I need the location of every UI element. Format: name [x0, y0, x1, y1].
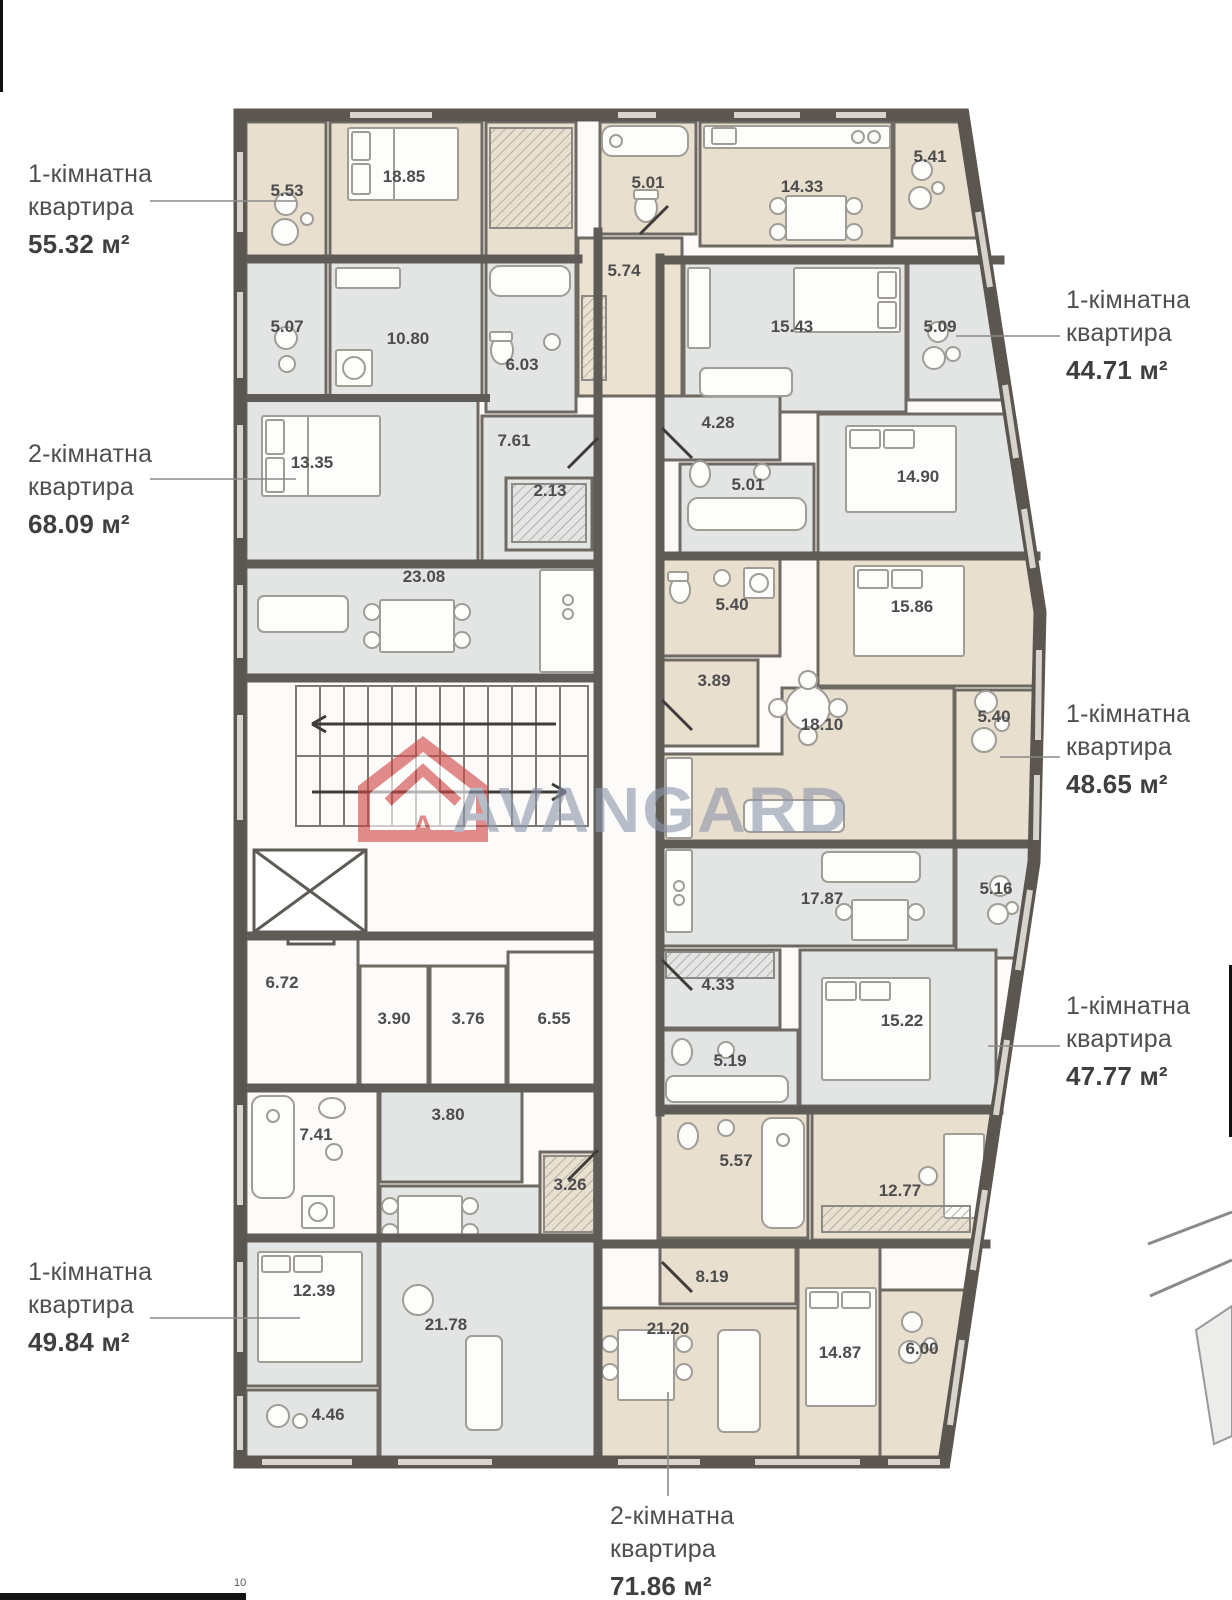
apartment-label-47: 1-кімнатна квартира 47.77 м²	[1066, 990, 1232, 1093]
elevator-shaft	[254, 850, 366, 944]
adjacent-structure	[1148, 1212, 1232, 1444]
apartment-area: 68.09 м²	[28, 507, 152, 541]
room-area-label: 6.72	[265, 973, 298, 992]
apartment-area: 71.86 м²	[610, 1569, 734, 1600]
room-area-label: 3.26	[553, 1175, 586, 1194]
apartment-label-44: 1-кімнатна квартира 44.71 м²	[1066, 284, 1232, 387]
room-area-label: 5.01	[731, 475, 764, 494]
room-area-label: 5.57	[719, 1151, 752, 1170]
apartment-type2: квартира	[1066, 731, 1232, 764]
room-area-label: 17.87	[801, 889, 844, 908]
apartment-type: 1-кімнатна	[28, 158, 152, 191]
apartment-area: 44.71 м²	[1066, 353, 1232, 387]
room-area-label: 7.61	[497, 431, 530, 450]
apartment-label-48: 1-кімнатна квартира 48.65 м²	[1066, 698, 1232, 801]
room-area-label: 4.33	[701, 975, 734, 994]
room-area-label: 5.74	[607, 261, 641, 280]
room-area-label: 18.10	[801, 715, 844, 734]
apartment-type: 2-кімнатна	[610, 1500, 734, 1533]
apartment-type2: квартира	[28, 191, 152, 224]
room-area-label: 7.41	[299, 1125, 332, 1144]
room-a6_hall	[380, 1090, 522, 1182]
apartment-label-49: 1-кімнатна квартира 49.84 м²	[28, 1256, 152, 1359]
brand-logo-letter: A	[412, 810, 434, 843]
room-area-label: 5.19	[713, 1051, 746, 1070]
page-number: 10	[234, 1577, 246, 1589]
apartment-type2: квартира	[1066, 317, 1232, 350]
room-area-label: 5.53	[270, 181, 303, 200]
room-area-label: 6.55	[537, 1009, 570, 1028]
brand-watermark-text: AVANGARD	[452, 774, 850, 846]
room-area-label: 2.13	[533, 481, 566, 500]
apartment-label-68: 2-кімнатна квартира 68.09 м²	[28, 438, 152, 541]
apartment-type: 1-кімнатна	[1066, 698, 1232, 731]
apartment-type2: квартира	[28, 471, 152, 504]
room-area-label: 21.78	[425, 1315, 468, 1334]
room-area-label: 12.39	[293, 1281, 336, 1300]
apartment-type: 1-кімнатна	[28, 1256, 152, 1289]
room-area-label: 6.00	[905, 1339, 938, 1358]
room-area-label: 21.20	[647, 1319, 690, 1338]
room-area-label: 3.76	[451, 1009, 484, 1028]
room-area-label: 13.35	[291, 453, 334, 472]
floor-plan-page: 5.5318.855.0114.335.415.745.0710.806.031…	[0, 0, 1232, 1600]
scan-edge-artifact	[0, 0, 3, 92]
room-area-label: 14.87	[819, 1343, 862, 1362]
apartment-area: 47.77 м²	[1066, 1059, 1232, 1093]
room-area-label: 5.40	[977, 707, 1010, 726]
room-area-label: 23.08	[403, 567, 446, 586]
room-area-label: 15.43	[771, 317, 814, 336]
apartment-type2: квартира	[28, 1289, 152, 1322]
room-area-label: 6.03	[505, 355, 538, 374]
apartment-area: 49.84 м²	[28, 1325, 152, 1359]
floor-plan-canvas: 5.5318.855.0114.335.415.745.0710.806.031…	[0, 0, 1232, 1600]
apartment-type: 1-кімнатна	[1066, 990, 1232, 1023]
apartment-type2: квартира	[610, 1533, 734, 1566]
apartment-label-55: 1-кімнатна квартира 55.32 м²	[28, 158, 152, 261]
room-area-label: 4.28	[701, 413, 734, 432]
room-area-label: 5.40	[715, 595, 748, 614]
room-area-label: 14.33	[781, 177, 824, 196]
room-area-label: 8.19	[695, 1267, 728, 1286]
room-area-label: 12.77	[879, 1181, 922, 1200]
room-st1	[246, 938, 358, 1086]
room-area-label: 14.90	[897, 467, 940, 486]
room-area-label: 5.09	[923, 317, 956, 336]
room-area-label: 15.86	[891, 597, 934, 616]
room-area-label: 10.80	[387, 329, 430, 348]
room-area-label: 4.46	[311, 1405, 344, 1424]
apartment-area: 48.65 м²	[1066, 767, 1232, 801]
apartment-type2: квартира	[1066, 1023, 1232, 1056]
apartment-area: 55.32 м²	[28, 227, 152, 261]
room-area-label: 15.22	[881, 1011, 924, 1030]
room-a6_balc	[246, 1390, 378, 1462]
room-area-label: 3.89	[697, 671, 730, 690]
apartment-type: 1-кімнатна	[1066, 284, 1232, 317]
room-area-label: 3.90	[377, 1009, 410, 1028]
room-area-label: 18.85	[383, 167, 426, 186]
apartment-type: 2-кімнатна	[28, 438, 152, 471]
room-area-label: 5.01	[631, 173, 664, 192]
apartment-label-71: 2-кімнатна квартира 71.86 м²	[610, 1500, 734, 1600]
room-area-label: 3.80	[431, 1105, 464, 1124]
room-area-label: 5.07	[270, 317, 303, 336]
page-bottom-bar	[0, 1593, 246, 1600]
room-area-label: 5.41	[913, 147, 946, 166]
room-area-label: 5.16	[979, 879, 1012, 898]
